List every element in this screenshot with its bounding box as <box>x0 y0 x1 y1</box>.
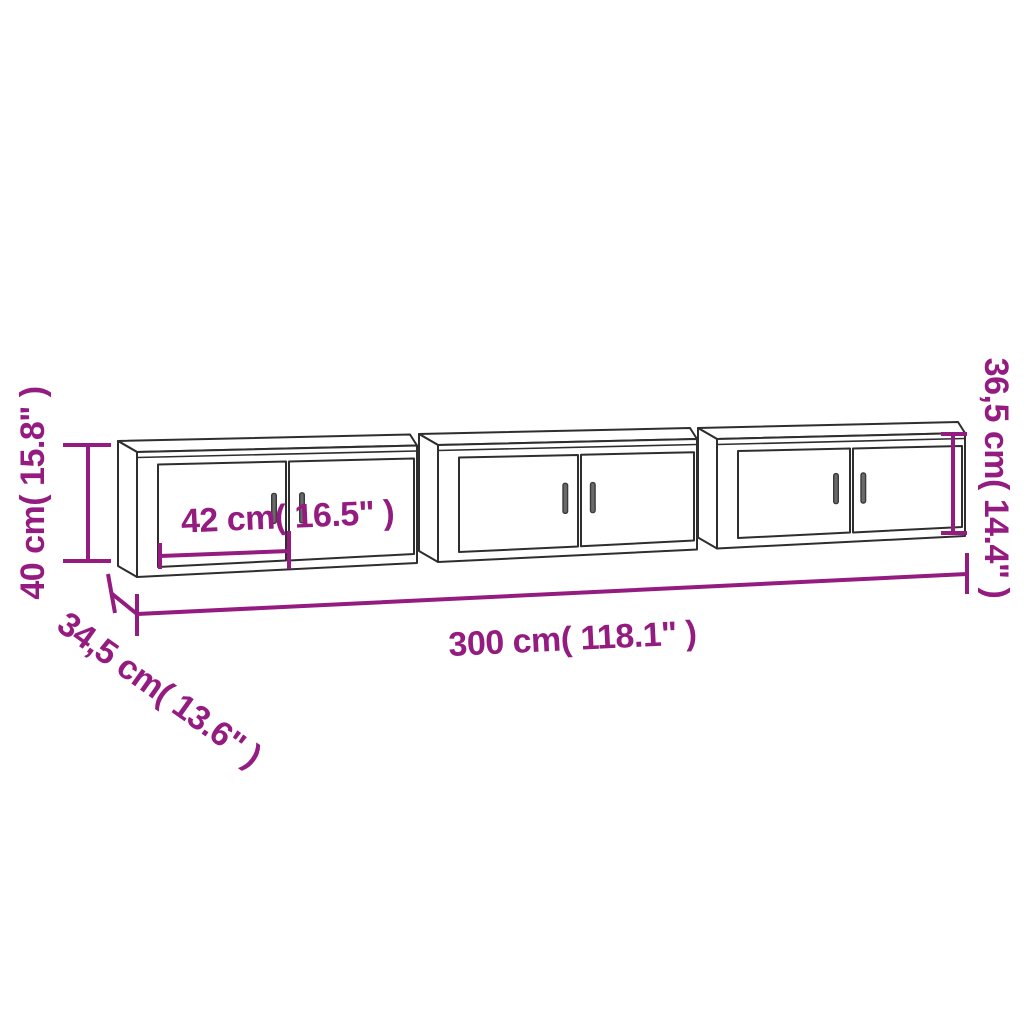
cabinet-dimension-diagram: 40 cm( 15.8" ) 34,5 cm( 13.6" ) 300 cm( … <box>0 0 1024 1024</box>
door-handle <box>861 473 866 503</box>
overall-width-dimension-label: 300 cm( 118.1" ) <box>448 614 698 664</box>
depth-dimension-label: 34,5 cm( 13.6" ) <box>50 605 268 776</box>
overall-height-dimension: 40 cm( 15.8" ) <box>14 386 111 599</box>
cabinet-right-door-right <box>853 446 962 533</box>
dimension-diagram-canvas: 40 cm( 15.8" ) 34,5 cm( 13.6" ) 300 cm( … <box>0 0 1024 1024</box>
cabinet-height-dimension-label: 36,5 cm( 14.4" ) <box>977 358 1015 599</box>
cabinet-left-side-face <box>118 441 137 577</box>
cabinet-middle-door-left <box>459 455 578 552</box>
cabinet-middle <box>419 428 697 562</box>
cabinet-middle-side-face <box>419 434 438 562</box>
overall-height-dimension-line <box>63 445 111 561</box>
depth-dimension: 34,5 cm( 13.6" ) <box>50 574 268 775</box>
cabinet-middle-door-right <box>581 452 694 546</box>
depth-dimension-line <box>108 574 137 614</box>
cabinet-right <box>698 422 965 549</box>
door-handle <box>563 483 568 513</box>
overall-height-dimension-label: 40 cm( 15.8" ) <box>14 386 52 599</box>
door-handle <box>834 474 839 504</box>
cabinet-height-dimension: 36,5 cm( 14.4" ) <box>941 358 1015 599</box>
cabinet-right-side-face <box>698 428 717 549</box>
door-handle <box>591 483 596 513</box>
